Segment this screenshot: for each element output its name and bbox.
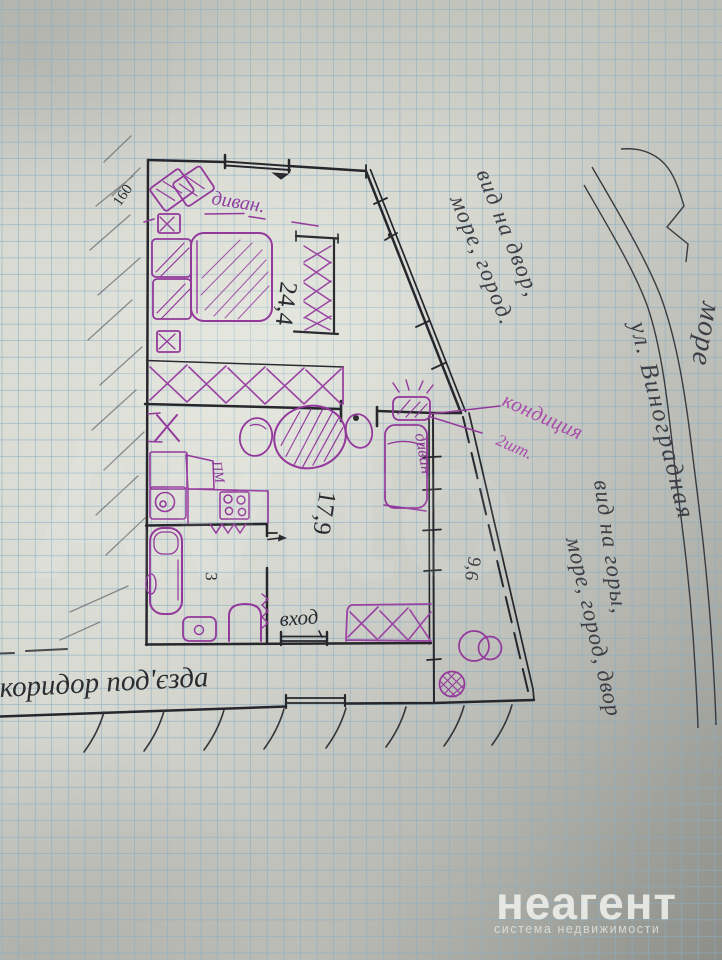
- svg-text:24,4: 24,4: [270, 280, 302, 327]
- svg-text:система недвижимости: система недвижимости: [494, 922, 660, 936]
- svg-text:Avito: Avito: [25, 398, 518, 621]
